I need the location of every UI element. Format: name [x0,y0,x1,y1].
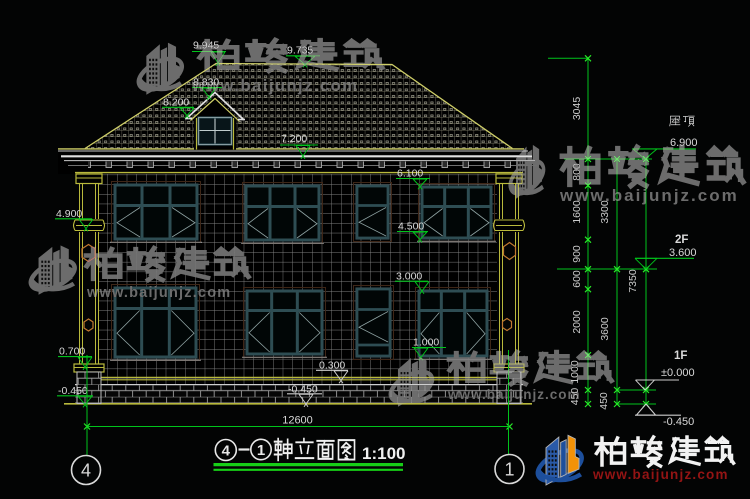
svg-text:1: 1 [257,442,265,459]
svg-text:900: 900 [571,245,583,263]
svg-text:0.300: 0.300 [319,360,345,372]
svg-text:www.baijunjz.com: www.baijunjz.com [559,186,739,205]
svg-text:www.baijunjz.com: www.baijunjz.com [592,467,729,482]
svg-text:450: 450 [598,392,610,410]
svg-text:4.500: 4.500 [398,221,424,233]
svg-text:3.600: 3.600 [669,247,697,259]
svg-text:1:100: 1:100 [362,444,405,463]
svg-text:600: 600 [571,270,583,288]
svg-text:4.900: 4.900 [56,208,82,220]
svg-text:2000: 2000 [571,310,583,334]
svg-text:-0.450: -0.450 [58,385,88,397]
svg-text:7.200: 7.200 [281,133,307,145]
svg-text:3045: 3045 [571,97,583,121]
svg-text:6.100: 6.100 [397,168,423,180]
svg-text:8.200: 8.200 [163,97,189,109]
svg-text:1F: 1F [674,350,687,362]
svg-text:4: 4 [81,461,91,481]
svg-text:12600: 12600 [282,415,313,427]
svg-text:3600: 3600 [599,317,611,341]
svg-text:-0.450: -0.450 [663,416,694,428]
svg-text:www.baijunjz.com: www.baijunjz.com [191,77,358,95]
svg-text:±0.000: ±0.000 [661,367,695,379]
svg-text:1: 1 [504,460,514,480]
svg-text:2F: 2F [675,234,688,246]
svg-text:0.700: 0.700 [59,346,85,358]
svg-text:4: 4 [222,443,231,460]
svg-text:www.baijunjz.com: www.baijunjz.com [86,285,231,301]
svg-text:7350: 7350 [627,269,639,293]
svg-text:1.000: 1.000 [413,337,439,349]
svg-text:www.baijunjz.com: www.baijunjz.com [447,387,581,402]
